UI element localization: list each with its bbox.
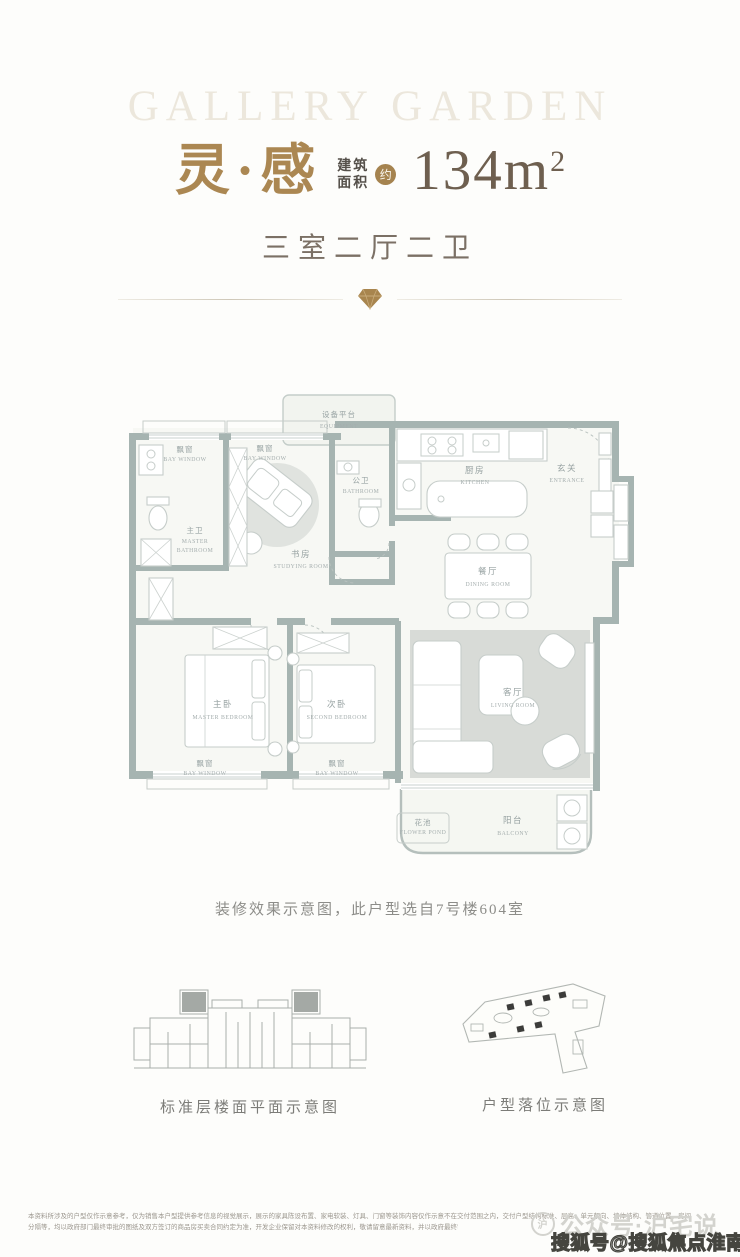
area-value: 134m2	[412, 142, 565, 199]
dining-furniture	[445, 534, 531, 618]
room-label-bay-tl1: 飘窗	[177, 444, 194, 454]
svg-text:ENTRANCE: ENTRANCE	[550, 478, 585, 484]
room-label-kitchen: 厨房	[465, 465, 485, 475]
plan-title: 灵·感	[175, 143, 321, 198]
disclaimer-line-2: 分隔等，均以政府部门最终审批的图纸及双方签订的商品房买卖合同约定为准，开发企业保…	[28, 1222, 458, 1233]
room-label-master-bath: 主卫	[187, 525, 204, 535]
svg-text:BATHROOM: BATHROOM	[343, 489, 380, 495]
svg-text:MASTER: MASTER	[182, 539, 209, 545]
area-prefix-line2: 面积	[337, 175, 369, 192]
divider-line-left	[118, 299, 343, 300]
room-label-equipment: 设备平台	[322, 409, 356, 419]
svg-text:BAY WINDOW: BAY WINDOW	[163, 457, 206, 463]
svg-text:EQUIPMENT: EQUIPMENT	[320, 424, 358, 430]
plan-subtitle: 三室二厅二卫	[0, 226, 740, 266]
room-label-public-bath: 公卫	[353, 476, 370, 485]
room-label-flower-pond: 花池	[415, 817, 432, 827]
room-label-bay-bl1: 飘窗	[197, 758, 214, 768]
svg-text:FLOWER POND: FLOWER POND	[400, 830, 447, 836]
watermark-sohu: 搜狐号@搜狐焦点淮南站	[551, 1228, 740, 1255]
svg-text:STUDYING ROOM: STUDYING ROOM	[274, 564, 329, 570]
svg-text:LIVING ROOM: LIVING ROOM	[491, 703, 535, 709]
room-label-balcony: 阳台	[503, 815, 523, 825]
approx-badge: 约	[375, 164, 396, 185]
floorplan-svg: 设备平台 EQUIPMENT 飘窗 BAY WINDOW 飘窗 BAY WIND…	[105, 393, 635, 873]
svg-text:SECOND BEDROOM: SECOND BEDROOM	[307, 715, 368, 721]
room-label-entrance: 玄关	[557, 463, 577, 473]
svg-text:BALCONY: BALCONY	[497, 831, 529, 837]
svg-text:MASTER BEDROOM: MASTER BEDROOM	[193, 715, 254, 721]
area-prefix: 建筑 面积 约	[337, 158, 396, 192]
floor-diagram-svg	[128, 982, 372, 1090]
room-label-living: 客厅	[503, 687, 523, 697]
svg-text:KITCHEN: KITCHEN	[461, 480, 490, 486]
room-label-study: 书房	[291, 549, 311, 559]
site-diagram-caption: 户型落位示意图	[435, 1094, 655, 1115]
svg-text:BAY WINDOW: BAY WINDOW	[243, 456, 286, 462]
header-title-row: 灵·感 建筑 面积 约 134m2	[0, 142, 740, 199]
svg-text:DINING ROOM: DINING ROOM	[466, 582, 511, 588]
room-label-dining: 餐厅	[478, 566, 498, 576]
diamond-gem-icon	[357, 288, 383, 310]
floor-diagram-caption: 标准层楼面平面示意图	[120, 1096, 380, 1117]
divider-line-right	[397, 299, 622, 300]
area-number: 134m	[412, 139, 550, 202]
gallery-garden-watermark: GALLERY GARDEN	[0, 82, 740, 131]
site-diagram-svg	[455, 976, 645, 1076]
room-label-master-bed: 主卧	[213, 699, 233, 709]
room-label-bay-tl2: 飘窗	[257, 443, 274, 453]
svg-text:BAY WINDOW: BAY WINDOW	[315, 771, 358, 777]
divider	[0, 288, 740, 310]
area-superscript: 2	[550, 145, 565, 178]
svg-text:BAY WINDOW: BAY WINDOW	[183, 771, 226, 777]
plan-caption: 装修效果示意图，此户型选自7号楼604室	[0, 898, 740, 919]
room-label-bay-bl2: 飘窗	[329, 758, 346, 768]
room-label-second-bed: 次卧	[327, 699, 347, 709]
svg-text:BATHROOM: BATHROOM	[177, 548, 214, 554]
area-prefix-line1: 建筑	[337, 158, 369, 175]
page: { "colors": { "accent_gold": "#a5834f", …	[0, 0, 740, 1257]
